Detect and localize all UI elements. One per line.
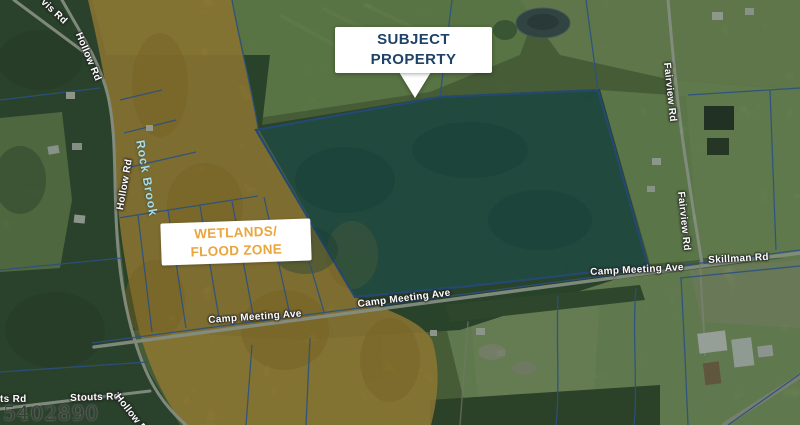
callout-line-1: SUBJECT [377, 30, 450, 50]
wetlands-flood-zone-label: WETLANDS/ FLOOD ZONE [160, 218, 311, 265]
aerial-property-map: vis Rd Hollow Rd Hollow Rd Camp Meeting … [0, 0, 800, 425]
photo-watermark: 5402890 [3, 401, 99, 425]
subject-property-callout: SUBJECT PROPERTY [335, 27, 492, 73]
callout-pointer [399, 72, 431, 98]
wetlands-line-2: FLOOD ZONE [190, 240, 282, 261]
callout-line-2: PROPERTY [371, 50, 457, 70]
